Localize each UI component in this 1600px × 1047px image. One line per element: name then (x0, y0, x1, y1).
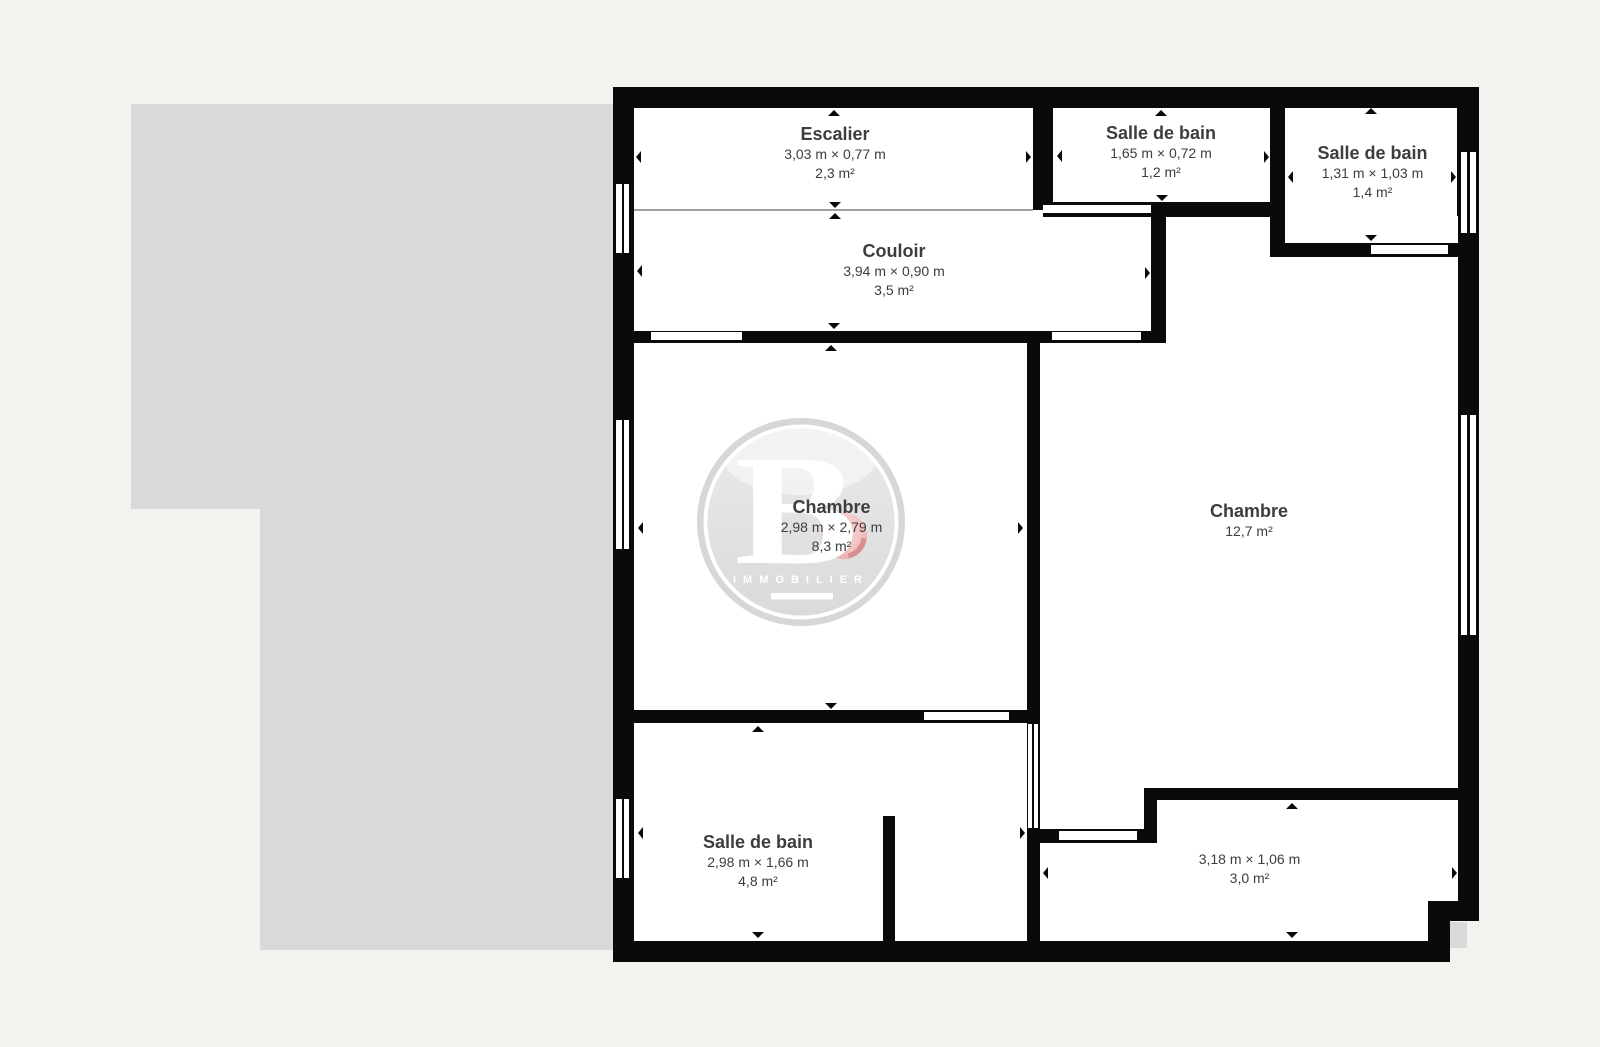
svg-text:IMMOBILIER: IMMOBILIER (733, 574, 869, 586)
